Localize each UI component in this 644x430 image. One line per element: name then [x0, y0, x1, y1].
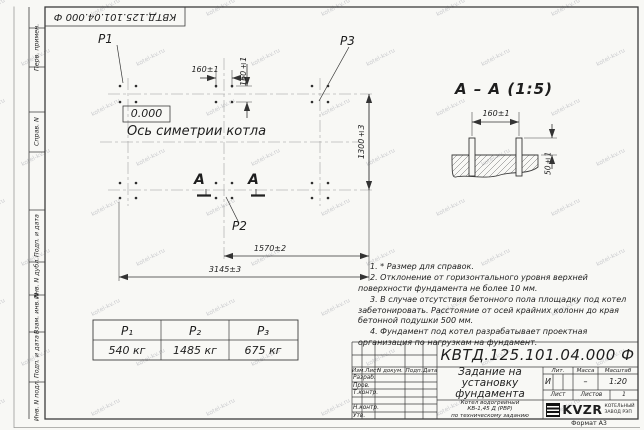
row-tkontr: Т.контр.: [353, 390, 378, 396]
drawing-sheet: kotel-kv.rukotel-kv.rukotel-kv.rukotel-k…: [0, 0, 644, 430]
format-label: Формат А3: [558, 420, 620, 427]
scale-value: 1:20: [598, 377, 638, 386]
p2-label: P2: [232, 219, 247, 233]
load-table-header-p3: P₃: [229, 324, 297, 338]
load-table-value-p2: 1485 кг: [161, 344, 229, 357]
company-name-line1: КОТЕЛЬНЫЙ: [604, 404, 634, 409]
section-letter-left: А: [194, 172, 205, 188]
dim-pitch-horizontal: 160±1: [188, 65, 222, 74]
company-name-line2: ЗАВОД РЭП: [604, 410, 631, 415]
row-nkontr: Н.контр.: [353, 405, 379, 411]
stamp-field-sprav-n: Справ. N: [29, 112, 45, 152]
lit-label: Лит.: [543, 368, 573, 374]
stamp-field-inv-dubl: Инв. N дубл.: [29, 262, 45, 295]
col-header-izm-list: Изм.Лист: [352, 368, 375, 374]
title-block-title: Задание на установку фундамента: [437, 367, 543, 400]
stamp-field-vzam-inv: Взам. инв. N: [29, 295, 45, 332]
mass-value: –: [573, 377, 598, 386]
col-header-podp: Подп.: [405, 368, 423, 374]
mass-label: Масса: [573, 368, 598, 374]
anchor-bolt-left: [469, 138, 475, 176]
dim-pitch-vertical: 160±1: [238, 56, 249, 86]
company-name: КОТЕЛЬНЫЙ ЗАВОД РЭП: [604, 404, 634, 415]
dim-length-3145: 3145±3: [195, 265, 255, 274]
anchor-bolt-right: [516, 138, 522, 176]
kvzr-logo-icon: [546, 403, 560, 417]
title-block-doc-number: КВТД.125.101.04.000 Ф: [437, 344, 638, 367]
subtitle-line-3: по техническому заданию: [451, 413, 529, 419]
load-table-value-p3: 675 кг: [229, 344, 297, 357]
boiler-axis-label: Ось симетрии котла: [127, 124, 266, 139]
p3-label: P3: [340, 34, 355, 48]
row-prov: Пров.: [353, 383, 370, 389]
note-1: 1. * Размер для справок.: [358, 262, 636, 272]
section-detail-geometry: [452, 138, 538, 177]
section-dim-height-50: 50±1: [543, 146, 553, 180]
stamp-field-inv-podl: Инв. N подл.: [29, 382, 45, 419]
dim-width-1300: 1300±3: [356, 118, 367, 166]
stamp-field-perv-primen: Перв. примен.: [29, 28, 45, 67]
stamp-field-podp-data-2: Подп. и дата: [29, 332, 45, 382]
load-table-value-p1: 540 кг: [93, 344, 161, 357]
section-dim-pitch: 160±1: [474, 109, 518, 118]
lit-value: И: [543, 377, 553, 386]
p1-label: P1: [98, 32, 113, 46]
level-mark: 0.000: [123, 106, 170, 122]
row-razrab: Разраб.: [353, 375, 376, 381]
kvzr-logo-text: KVZR: [562, 402, 602, 417]
sheet-label: Лист: [543, 392, 573, 398]
concrete-pad: [452, 155, 538, 177]
company-cell: KVZR КОТЕЛЬНЫЙ ЗАВОД РЭП: [543, 400, 638, 419]
section-view-title: А – А (1:5): [455, 80, 553, 98]
note-3: 3. В случае отсутствия бетонного пола пл…: [358, 295, 636, 326]
row-utv: Утв.: [353, 413, 365, 419]
stamp-field-podp-data-1: Подп. и дата: [29, 210, 45, 262]
col-header-n-dokum: N докум.: [375, 368, 405, 374]
note-2: 2. Отклонение от горизонтального уровня …: [358, 273, 636, 294]
load-table-header-p1: P₁: [93, 324, 161, 338]
title-block-subtitle: Котел водогрейный КВ-1,45 Д (РВР) по тех…: [437, 400, 543, 419]
doc-number-rotated: КВТД.125.101.04.000 Ф: [45, 8, 185, 25]
sheets-label: Листов: [573, 392, 610, 398]
load-table-header-p2: P₂: [161, 324, 229, 338]
col-header-data: Дата: [423, 368, 437, 374]
notes-block: 1. * Размер для справок. 2. Отклонение о…: [358, 262, 636, 349]
dim-half-length-1570: 1570±2: [240, 244, 300, 253]
sheets-value: 1: [610, 392, 638, 398]
scale-label: Масштаб: [598, 368, 638, 374]
section-letter-right: А: [248, 172, 259, 188]
